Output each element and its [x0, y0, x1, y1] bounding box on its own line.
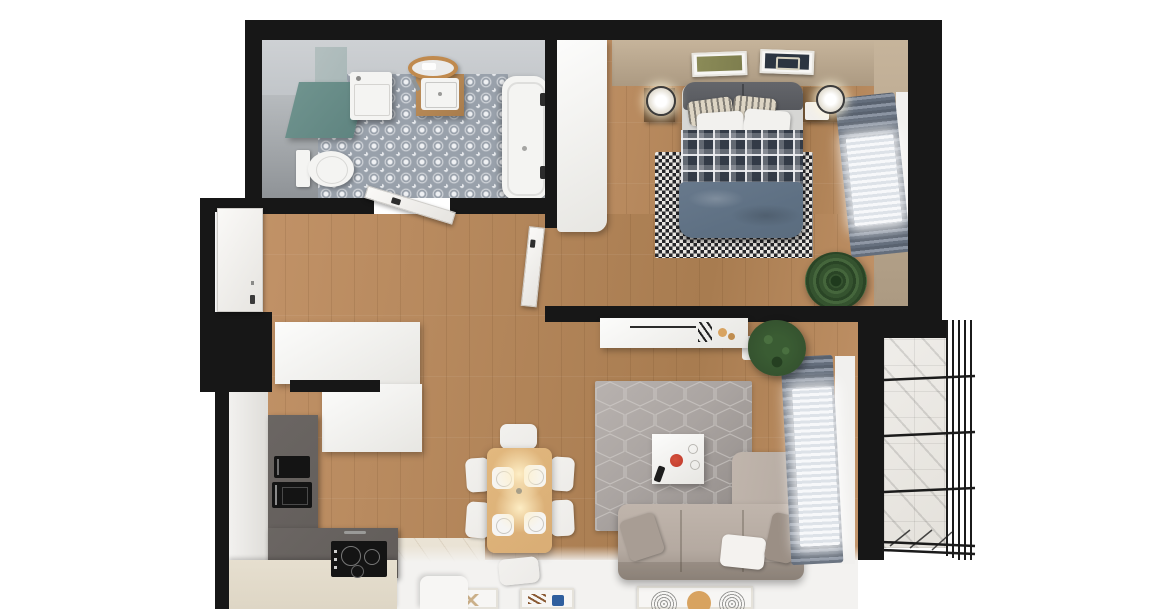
sphere-lamp-left	[646, 86, 676, 116]
floorplan-canvas	[0, 0, 1169, 609]
wall-strip-above-kitchen-cabinet	[290, 380, 380, 392]
entrance-door-lock	[251, 281, 254, 285]
cup-2	[690, 460, 700, 470]
dining-table	[487, 448, 552, 553]
wall-bathroom-bottom-right	[450, 198, 557, 214]
bathtub-drain	[522, 146, 527, 151]
built-in-oven	[272, 482, 312, 508]
dining-chair-right-upper	[549, 456, 575, 492]
cooktop-buttons	[334, 547, 337, 569]
bed-plaid-duvet	[681, 130, 803, 188]
pendant-light-fixture	[516, 488, 522, 494]
wall-kitchen-left	[215, 390, 229, 609]
bathroom-door-handle	[391, 197, 401, 205]
sink-drain	[438, 92, 442, 96]
poster-pencil-strokes	[528, 594, 546, 604]
wall-top	[245, 20, 942, 40]
round-wood-mirror	[408, 56, 458, 80]
oven-window	[282, 487, 308, 505]
burner-2	[364, 549, 380, 565]
storage-cabinet-top	[315, 47, 347, 85]
washing-machine	[350, 72, 392, 120]
wall-art-right-shape	[776, 57, 800, 71]
kitchen-faucet	[344, 531, 366, 534]
console-wood-ball-2	[728, 333, 735, 340]
poster-orange-circle	[687, 591, 711, 609]
wall-entrance-outer	[200, 212, 215, 312]
washing-machine-lid	[354, 84, 390, 116]
wall-left-bathroom	[245, 36, 262, 204]
red-bowl	[670, 454, 683, 467]
poster-blue-square	[552, 595, 564, 606]
burner-1	[341, 546, 361, 566]
place-setting-3	[492, 514, 514, 536]
white-stool	[420, 576, 468, 609]
wall-entrance-corner	[200, 312, 272, 392]
bedroom-sheer-curtain	[846, 134, 903, 227]
dining-chair-top	[500, 424, 537, 449]
wall-art-left-canvas	[697, 55, 742, 72]
poster-dotted-circle-right	[719, 591, 745, 609]
sofa-pillow-white	[719, 534, 766, 570]
bedroom-wardrobe	[557, 40, 607, 232]
wall-art-right	[760, 49, 815, 75]
burner-3	[351, 565, 364, 578]
microwave-handle	[277, 459, 279, 475]
microwave	[274, 456, 310, 478]
living-sheer-curtain	[792, 387, 840, 547]
place-setting-4	[524, 512, 546, 534]
place-setting-2	[524, 465, 546, 487]
floor-poster-pencils	[520, 588, 574, 609]
toilet-seat-line	[316, 156, 348, 184]
console-wood-ball-1	[718, 328, 727, 337]
hall-wardrobe	[275, 322, 420, 384]
remote-control	[653, 465, 665, 482]
poster-dotted-circle-left	[651, 591, 677, 609]
entrance-door-handle	[250, 295, 255, 304]
induction-cooktop	[331, 541, 387, 577]
floor-poster-circles	[637, 586, 753, 609]
bedroom-plant	[805, 252, 867, 310]
coffee-table	[652, 434, 704, 484]
kitchen-upper-cabinet	[322, 384, 422, 452]
mirror-shelf-items	[422, 63, 436, 70]
living-plant	[748, 320, 806, 376]
console-decor-sticks	[698, 322, 712, 342]
sink-basin	[421, 78, 459, 110]
place-setting-1	[492, 467, 514, 489]
console-metal-rod	[630, 326, 696, 328]
bed-blue-blanket	[679, 182, 803, 238]
washing-machine-knob	[356, 76, 361, 81]
toilet-bowl	[308, 151, 354, 187]
dining-chair-bottom	[498, 556, 540, 586]
dining-chair-right-lower	[549, 499, 575, 536]
oven-handle	[275, 485, 277, 505]
wall-bath-bedroom-divider	[545, 36, 557, 228]
entrance-door	[217, 208, 263, 312]
wall-bedroom-right	[908, 36, 942, 322]
sphere-lamp-right	[816, 85, 845, 114]
tv-console	[600, 318, 748, 348]
balcony-railing	[880, 316, 984, 564]
cup-1	[688, 444, 698, 454]
wall-art-left	[692, 51, 748, 77]
bedroom-door-handle	[530, 239, 536, 247]
wall-bathroom-bottom-left	[262, 198, 374, 214]
sofa-back-edge	[618, 562, 804, 580]
